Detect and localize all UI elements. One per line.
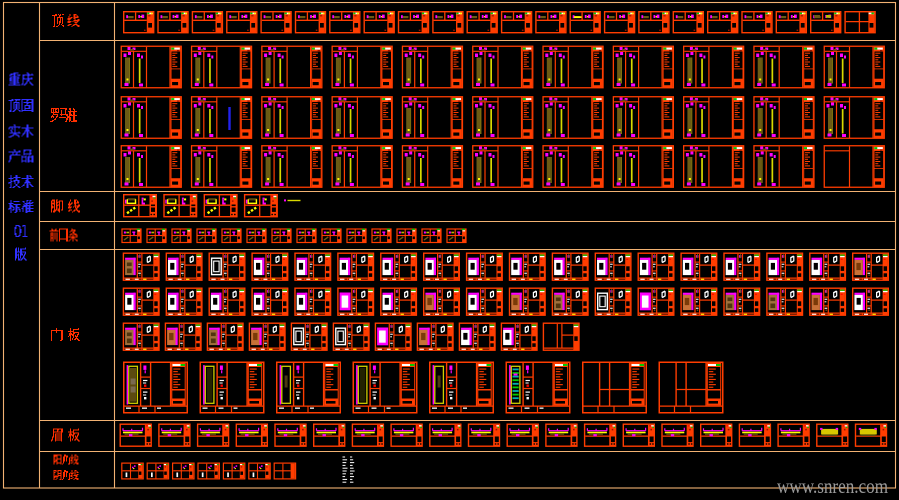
svg-text:www.snren.com: www.snren.com (777, 474, 888, 498)
